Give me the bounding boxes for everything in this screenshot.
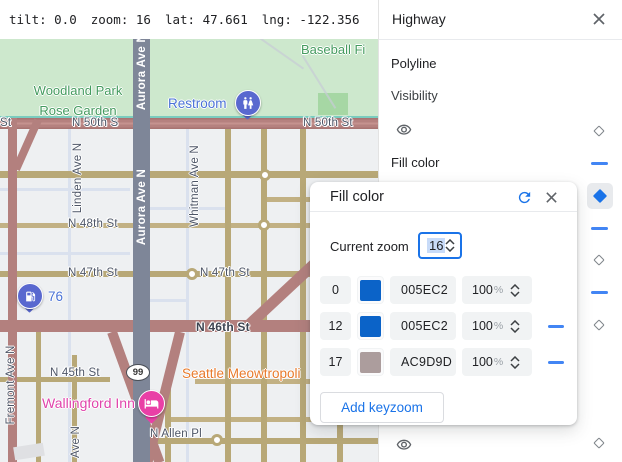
road-minor [150,207,226,210]
selected-keyzoom-tile[interactable] [587,183,613,209]
gas-station-pin[interactable] [17,283,43,309]
dialog-close-icon[interactable] [543,189,560,206]
keyzoom-dash-icon[interactable] [591,227,608,230]
fill-color-label: Fill color [391,155,439,170]
street-label: N 47th St [200,267,250,279]
restroom-label: Restroom [168,96,227,111]
street-label: Aurora Ave N [136,169,148,245]
diamond-filled-icon [593,189,607,203]
percent-sign: % [494,320,503,332]
lng-readout: lng: -122.356 [262,12,360,27]
street-label: N 47th St [68,267,118,279]
add-keyzoom-button[interactable]: Add keyzoom [320,392,444,423]
visibility-label: Visibility [391,88,438,103]
keyzoom-diamond-icon[interactable] [593,254,604,265]
current-zoom-label: Current zoom [330,239,409,254]
remove-keyzoom-icon[interactable] [548,361,564,364]
visibility-eye-icon[interactable] [392,121,416,139]
bed-icon [144,396,159,411]
chevron-up-icon [510,284,520,290]
keyzoom-dash-icon[interactable] [591,162,608,165]
road-minor [0,252,130,255]
street-label: N 50th St [303,117,353,129]
restroom-icon [241,96,255,110]
intersection-node [259,169,271,181]
chevron-down-icon [510,363,520,369]
street-label: Fremont Ave N [5,345,17,424]
visibility-eye-icon[interactable] [392,436,416,454]
street-label: N 46th St [196,320,250,334]
zoom-readout: zoom: 16 [91,12,151,27]
opacity-value: 100 [472,283,493,297]
street-label: Aurora Ave N [136,39,148,110]
park-label: Woodland Park Rose Garden [30,81,126,121]
map-status-bar: tilt: 0.0 zoom: 16 lat: 47.661 lng: -122… [0,0,378,39]
cat-hotel-label: Seattle Meowtropoli [182,366,301,381]
opacity-value: 100 [472,355,493,369]
gas-pump-icon [24,290,37,303]
keyzoom-level-field[interactable]: 0 [320,276,351,304]
opacity-stepper[interactable] [510,356,520,369]
swatch-color [360,352,381,373]
tilt-readout: tilt: 0.0 [9,12,77,27]
dialog-header-divider [310,211,577,212]
reset-icon[interactable] [515,188,534,207]
panel-title: Highway [392,11,446,27]
street-label: Whitman Ave N [189,145,201,227]
road-khaki-v [225,120,231,462]
inn-pin[interactable] [138,390,165,417]
gas-station-label: 76 [48,289,63,304]
opacity-stepper[interactable] [510,284,520,297]
current-zoom-value: 16 [427,238,445,253]
dialog-title: Fill color [330,189,384,205]
color-swatch[interactable] [357,276,384,304]
chevron-up-icon [510,356,520,362]
keyzoom-row: 0 005EC2 100% [310,276,577,304]
hex-field[interactable]: 005EC2 [390,312,456,340]
zoom-stepper[interactable] [445,239,455,252]
chevron-up-icon [510,320,520,326]
fill-color-dialog: Fill color Current zoom 16 0 005EC2 100%… [310,182,577,425]
remove-keyzoom-icon[interactable] [548,325,564,328]
color-swatch[interactable] [357,312,384,340]
chevron-up-icon [445,239,455,245]
chevron-down-icon [445,246,455,252]
chevron-down-icon [510,291,520,297]
lat-readout: lat: 47.661 [165,12,248,27]
keyzoom-diamond-icon[interactable] [593,437,604,448]
hex-field[interactable]: AC9D9D [390,348,456,376]
swatch-color [360,280,381,301]
road-khaki-v [300,120,306,462]
current-zoom-input[interactable]: 16 [418,232,462,259]
polyline-section-label: Polyline [391,56,437,71]
intersection-node [258,219,270,231]
keyzoom-level-field[interactable]: 12 [320,312,351,340]
road-minor [150,299,188,302]
opacity-field[interactable]: 100% [462,348,532,376]
street-label: N 48th St [68,218,118,230]
keyzoom-row: 12 005EC2 100% [310,312,577,340]
keyzoom-diamond-icon[interactable] [593,125,604,136]
inn-label: Wallingford Inn [42,395,135,411]
street-label: Ave N [70,426,82,458]
street-label: Linden Ave N [72,143,84,214]
highway-99-shield: 99 [126,364,150,381]
keyzoom-dash-icon[interactable] [591,291,608,294]
shield-number: 99 [133,367,144,378]
opacity-stepper[interactable] [510,320,520,333]
street-label: St [0,117,11,129]
restroom-pin[interactable] [235,90,261,116]
intersection-node [186,268,198,280]
opacity-field[interactable]: 100% [462,312,532,340]
header-divider [379,39,622,40]
chevron-down-icon [510,327,520,333]
street-label: N 45th St [50,367,100,379]
keyzoom-level-field[interactable]: 17 [320,348,351,376]
opacity-value: 100 [472,319,493,333]
percent-sign: % [494,284,503,296]
keyzoom-diamond-icon[interactable] [593,319,604,330]
hex-field[interactable]: 005EC2 [390,276,456,304]
road-minor [0,188,130,191]
swatch-color [360,316,381,337]
opacity-field[interactable]: 100% [462,276,532,304]
close-icon[interactable] [589,9,609,29]
panel-header: Highway [379,0,622,39]
keyzoom-row: 17 AC9D9D 100% [310,348,577,376]
baseball-field-label: Baseball Fi [301,40,365,60]
street-label: N Allen Pl [150,428,202,440]
percent-sign: % [494,356,503,368]
intersection-node [211,434,223,446]
color-swatch[interactable] [357,348,384,376]
